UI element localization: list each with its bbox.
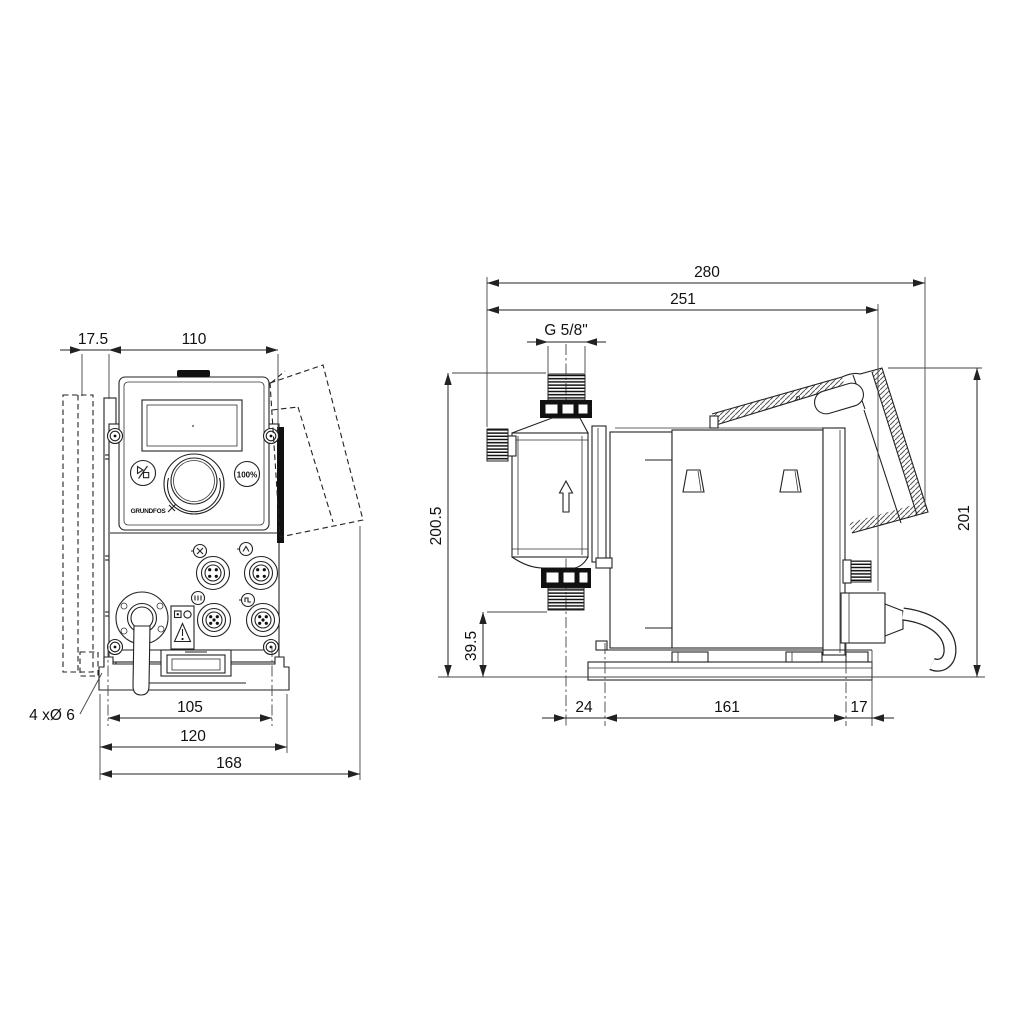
inlet-thread xyxy=(548,588,584,610)
power-cable xyxy=(133,626,150,695)
dim-front-overall-width: 168 xyxy=(216,755,242,772)
boost-100-button[interactable]: 100% xyxy=(235,462,260,487)
top-tab xyxy=(177,370,210,377)
note-mounting-holes: 4 xØ 6 xyxy=(29,707,75,724)
pump-body-side xyxy=(610,428,845,655)
rail-clip xyxy=(161,650,231,676)
connector-m12[interactable] xyxy=(198,604,231,637)
outlet-thread xyxy=(548,374,585,400)
dim-front-hole-spacing: 105 xyxy=(177,699,203,716)
head-back-plate xyxy=(592,426,606,562)
connector-m12[interactable] xyxy=(247,604,280,637)
outlet-union-nut xyxy=(540,400,592,418)
dim-side-depth-to-cable: 251 xyxy=(670,291,696,308)
dim-side-overall-height: 201 xyxy=(956,505,973,531)
click-wheel[interactable] xyxy=(164,454,224,514)
boost-button-label: 100% xyxy=(237,471,257,480)
start-stop-button[interactable] xyxy=(131,461,156,486)
warning-label-plate xyxy=(171,606,194,649)
dim-side-base-length: 161 xyxy=(714,699,740,716)
label-thread-size: G 5/8" xyxy=(544,322,587,339)
technical-drawing-page: 100% GRUNDFOS xyxy=(0,0,1024,1024)
dim-side-base-to-back: 17 xyxy=(850,699,867,716)
lcd-display xyxy=(142,400,242,451)
dim-side-overall-depth: 280 xyxy=(694,264,720,281)
connector-m12[interactable] xyxy=(197,557,230,590)
dim-side-inlet-height: 39.5 xyxy=(463,631,480,661)
brand-logo-text: GRUNDFOS xyxy=(131,508,167,515)
housing-side-shadow xyxy=(277,427,284,543)
dim-side-height-outlet: 200.5 xyxy=(428,507,445,546)
dim-side-head-to-base: 24 xyxy=(575,699,593,716)
inlet-union-nut xyxy=(541,568,591,588)
dosing-pump-dimension-drawing: 100% GRUNDFOS xyxy=(0,0,1024,1024)
vent-stub xyxy=(843,560,871,583)
dim-front-rail-offset: 17.5 xyxy=(78,331,108,348)
connector-m12[interactable] xyxy=(245,557,278,590)
dim-front-width: 110 xyxy=(182,331,207,348)
dim-front-plate-width: 120 xyxy=(180,728,206,745)
